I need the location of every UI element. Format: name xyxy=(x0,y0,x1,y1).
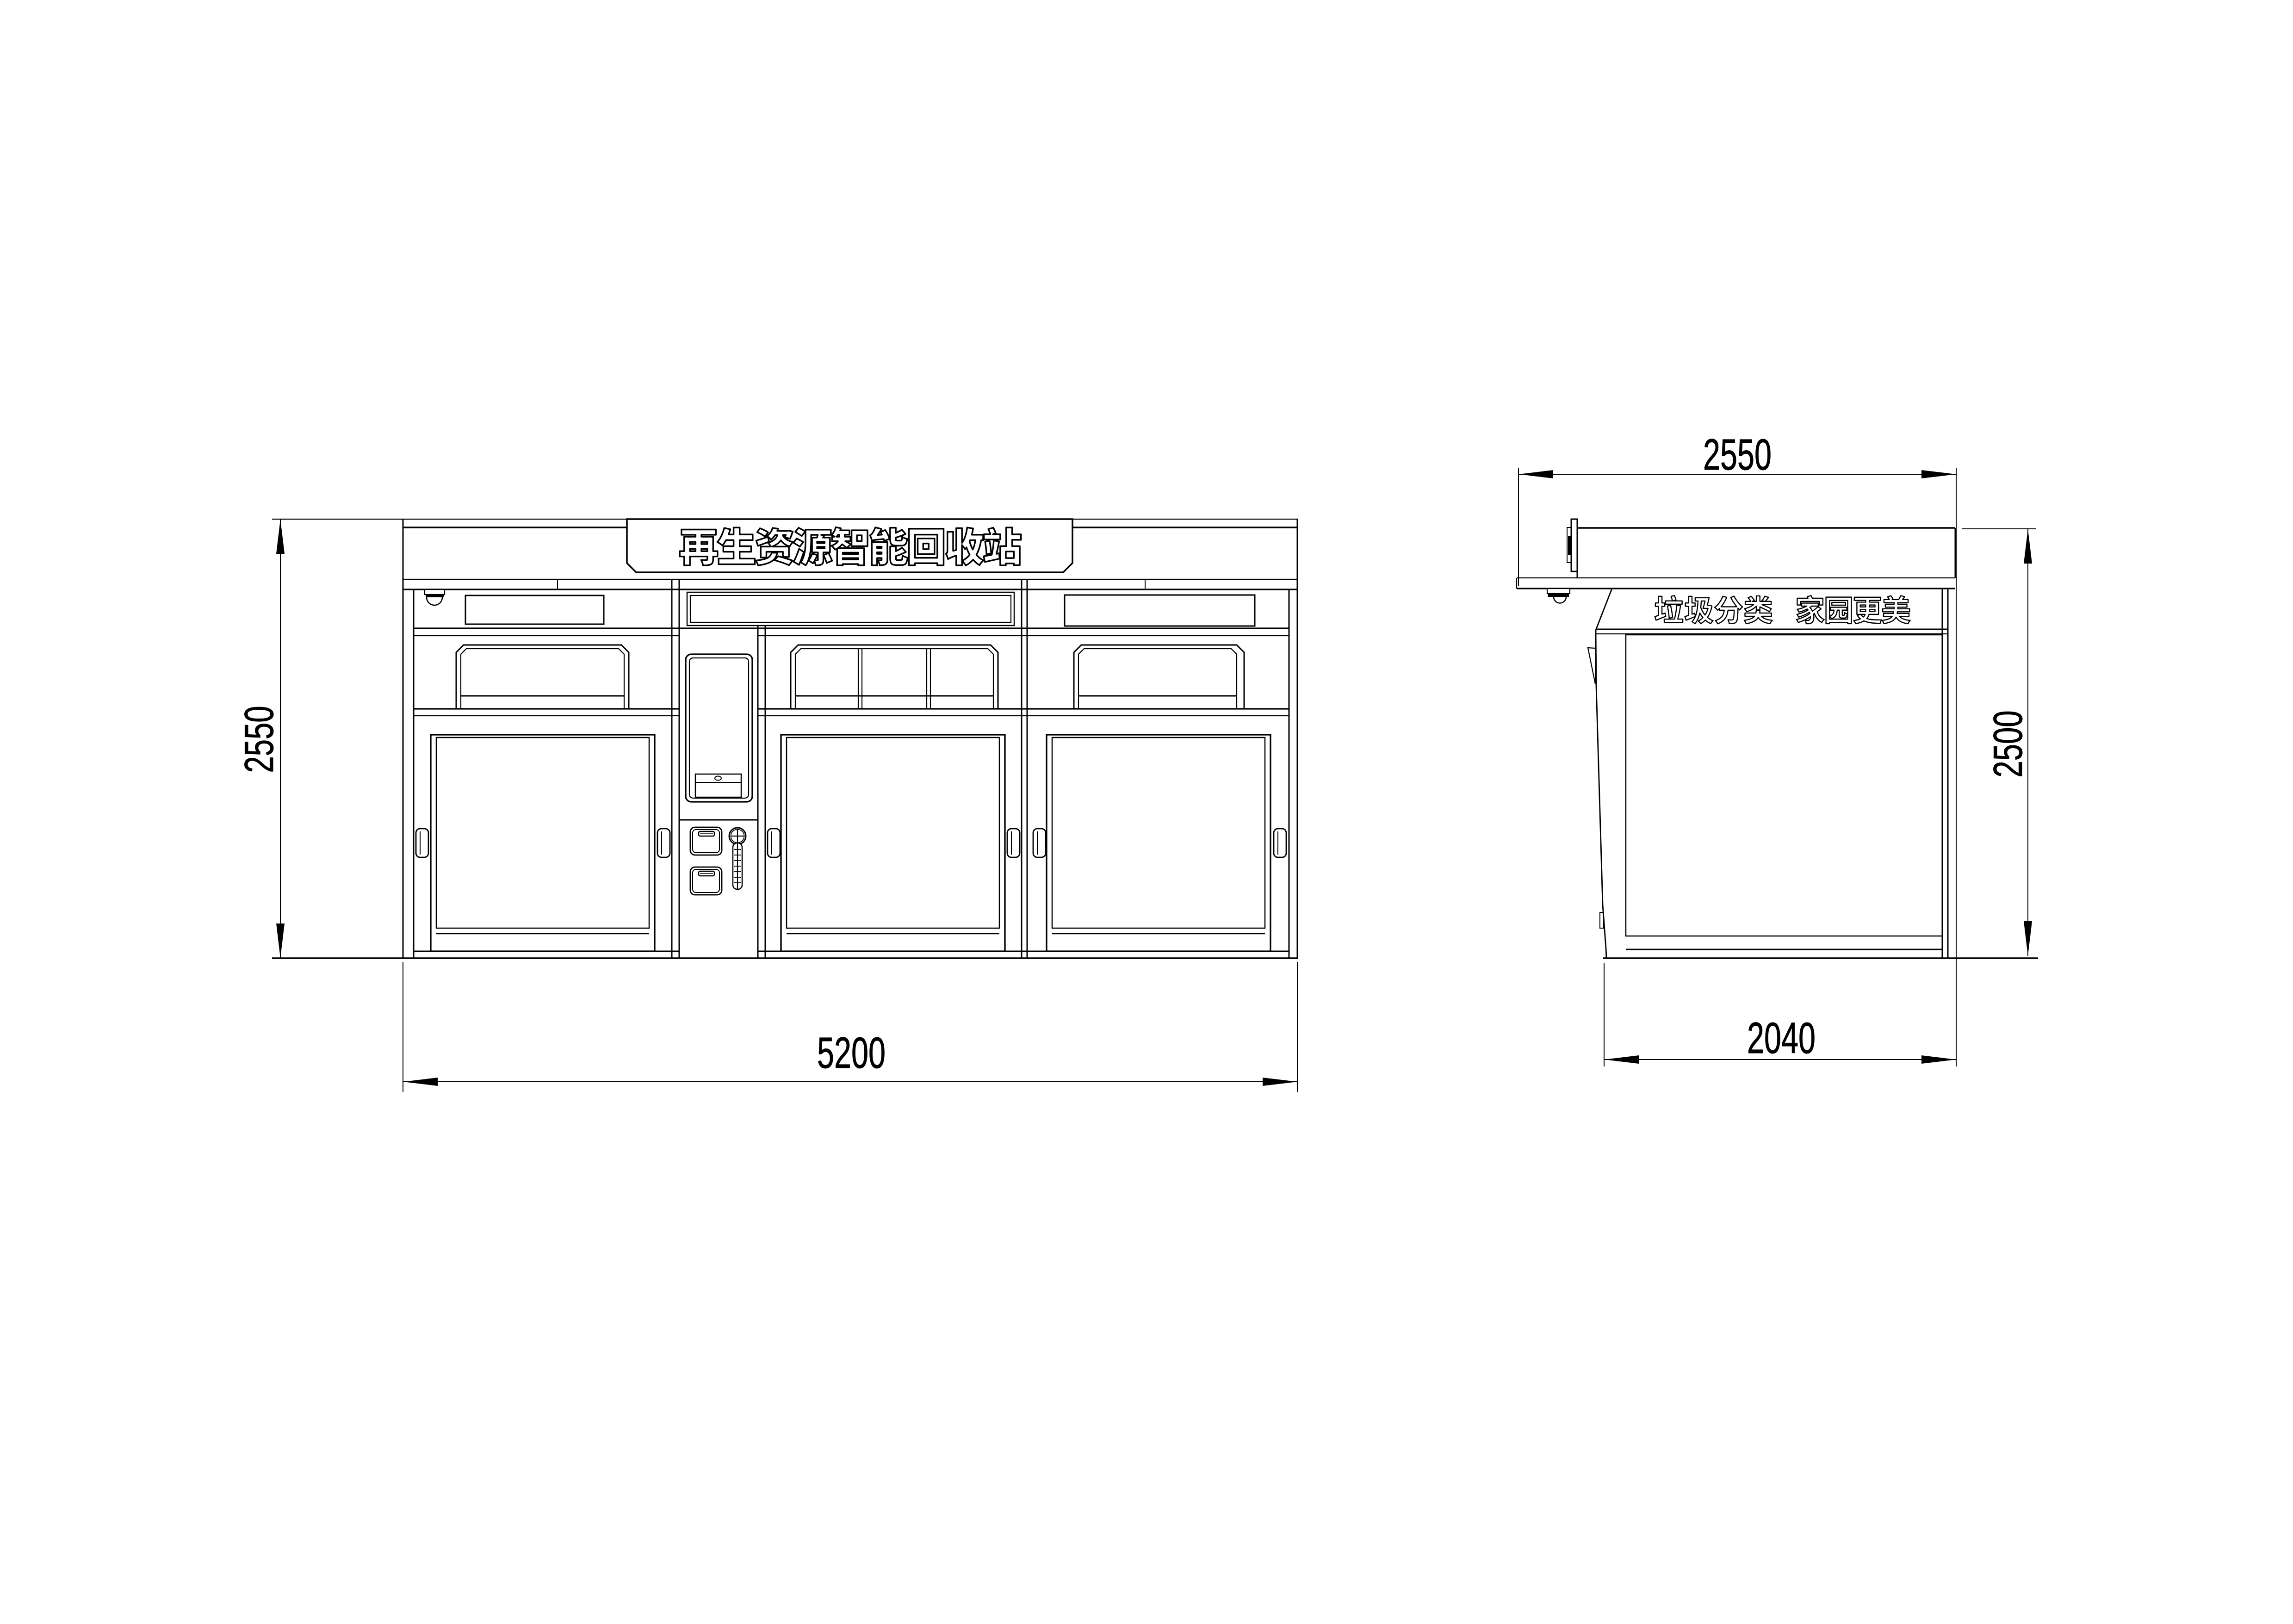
svg-text:2500: 2500 xyxy=(1985,711,2031,778)
svg-text:2550: 2550 xyxy=(236,706,282,773)
svg-text:5200: 5200 xyxy=(817,1029,886,1078)
svg-text:2550: 2550 xyxy=(1703,430,1772,479)
svg-text:2040: 2040 xyxy=(1747,1014,1816,1063)
